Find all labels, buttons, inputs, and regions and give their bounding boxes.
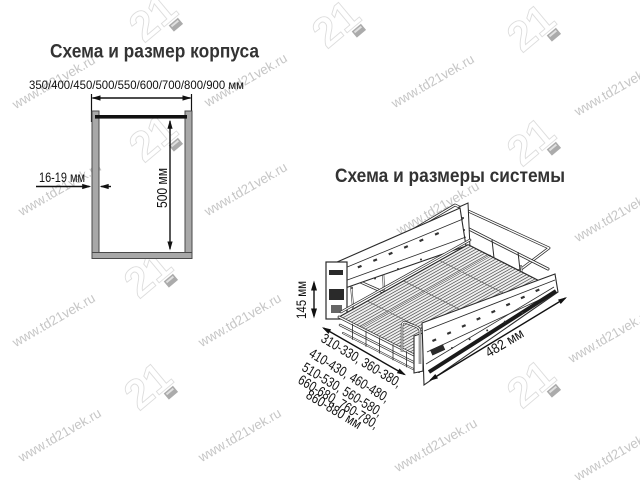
- svg-text:Схема и размер корпуса: Схема и размер корпуса: [50, 41, 259, 63]
- svg-text:350/400/450/500/550/600/700/80: 350/400/450/500/550/600/700/800/900 мм: [29, 78, 244, 92]
- svg-text:Схема и размеры системы: Схема и размеры системы: [335, 165, 565, 187]
- svg-text:145 мм: 145 мм: [294, 281, 309, 319]
- svg-text:16-19 мм: 16-19 мм: [39, 169, 85, 185]
- svg-text:500 мм: 500 мм: [154, 168, 171, 208]
